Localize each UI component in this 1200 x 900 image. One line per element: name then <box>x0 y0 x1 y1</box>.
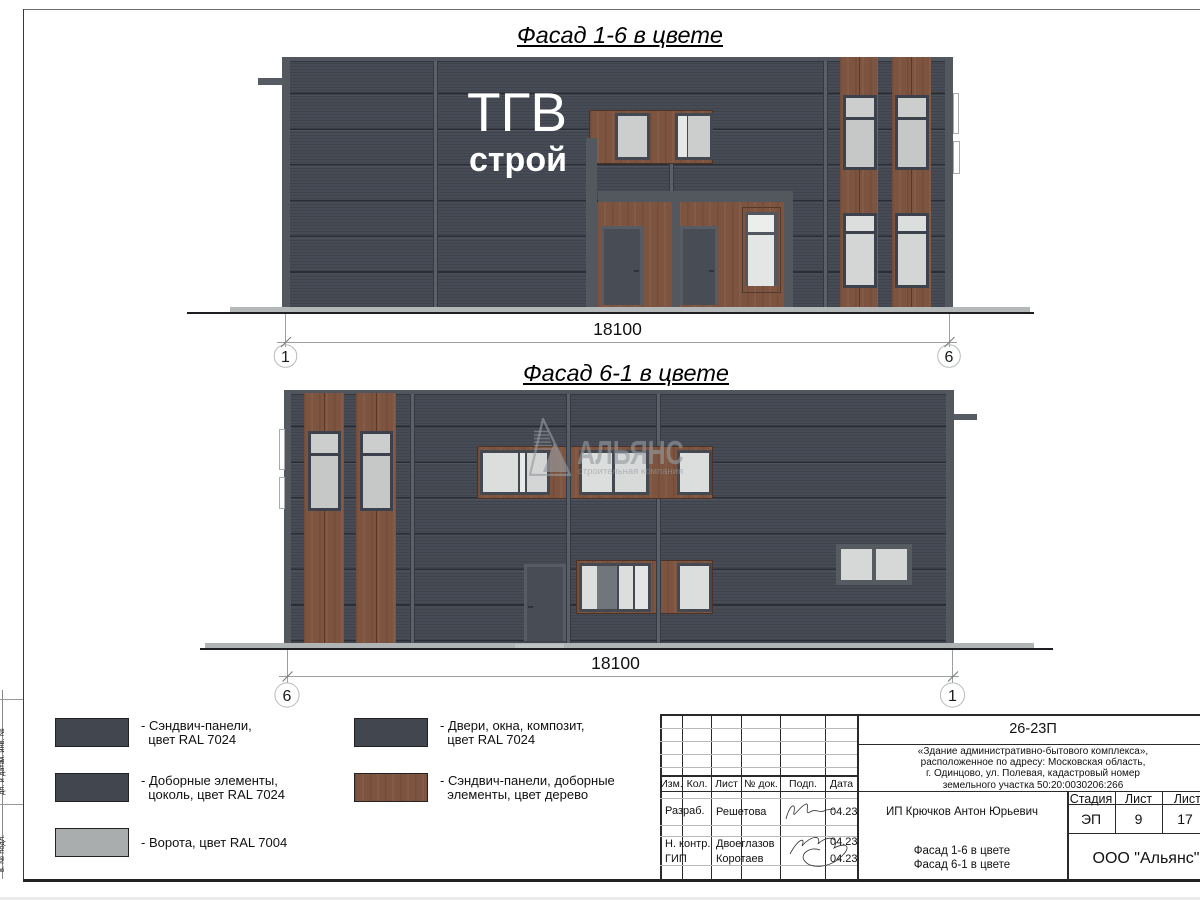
svg-text:6: 6 <box>283 688 292 705</box>
svg-text:1: 1 <box>281 349 290 366</box>
svg-text:6: 6 <box>945 349 954 366</box>
svg-text:1: 1 <box>948 688 957 705</box>
